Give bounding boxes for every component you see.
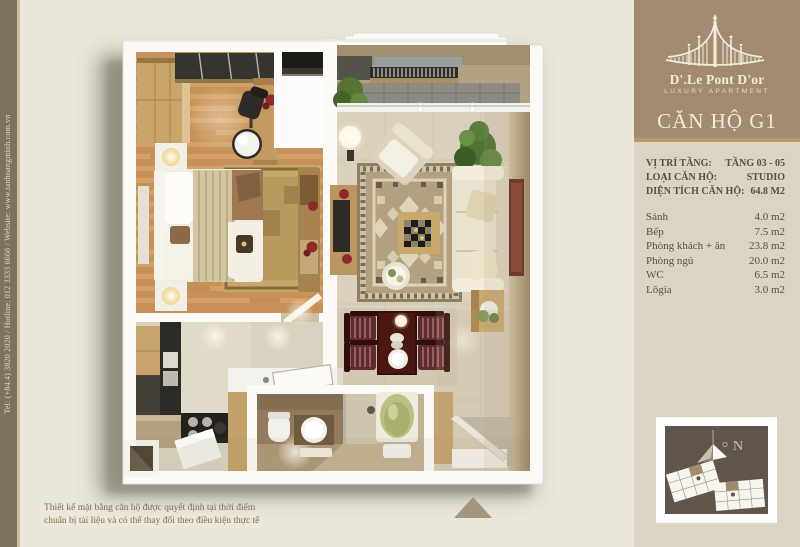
svg-text:N: N — [733, 439, 743, 454]
